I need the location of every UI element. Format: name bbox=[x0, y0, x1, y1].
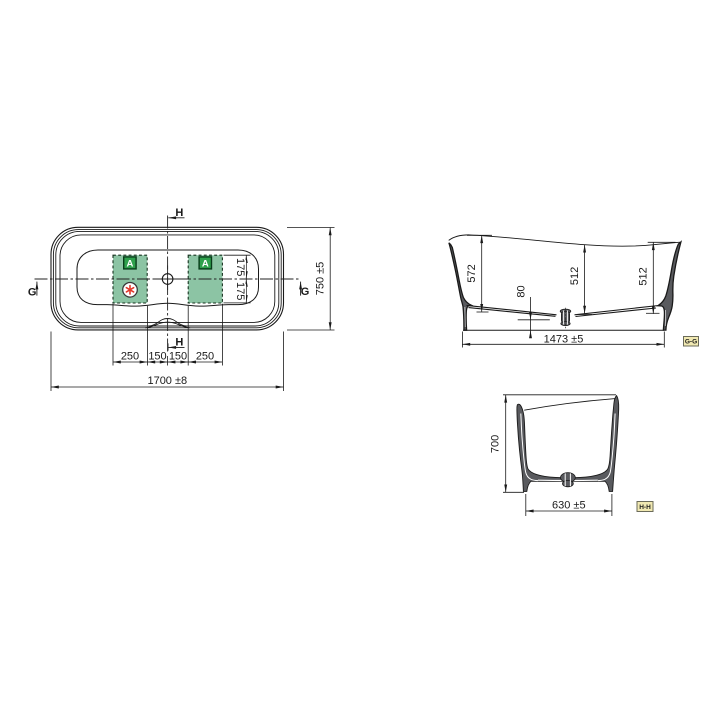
svg-text:630 ±5: 630 ±5 bbox=[552, 499, 586, 511]
svg-text:700: 700 bbox=[490, 435, 502, 453]
svg-text:H: H bbox=[175, 337, 183, 349]
svg-text:175: 175 bbox=[234, 282, 246, 300]
svg-text:1473 ±5: 1473 ±5 bbox=[544, 334, 584, 346]
svg-text:150: 150 bbox=[169, 350, 187, 362]
svg-text:A: A bbox=[202, 259, 209, 270]
svg-text:1700 ±8: 1700 ±8 bbox=[147, 375, 187, 387]
svg-text:250: 250 bbox=[121, 350, 139, 362]
svg-text:250: 250 bbox=[196, 350, 214, 362]
svg-text:A: A bbox=[126, 259, 133, 270]
svg-text:150: 150 bbox=[148, 350, 166, 362]
svg-text:G-G: G-G bbox=[685, 339, 697, 346]
svg-text:80: 80 bbox=[516, 285, 528, 297]
svg-text:175: 175 bbox=[234, 258, 246, 276]
svg-text:G: G bbox=[28, 287, 37, 299]
svg-text:G: G bbox=[301, 286, 310, 298]
svg-text:H-H: H-H bbox=[639, 504, 651, 511]
svg-text:512: 512 bbox=[569, 267, 581, 285]
svg-text:512: 512 bbox=[638, 267, 650, 285]
svg-text:H: H bbox=[175, 207, 183, 219]
svg-text:750 ±5: 750 ±5 bbox=[314, 262, 326, 296]
svg-text:572: 572 bbox=[466, 264, 478, 282]
